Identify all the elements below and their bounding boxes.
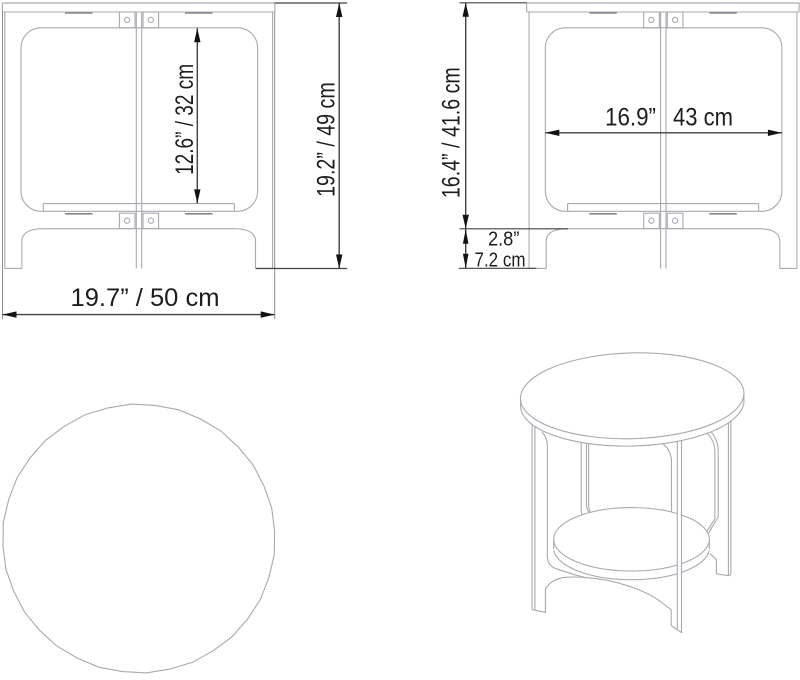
svg-text:16.4” / 41.6 cm: 16.4” / 41.6 cm	[438, 67, 466, 198]
svg-text:16.9”: 16.9”	[605, 104, 656, 132]
svg-text:19.2” / 49 cm: 19.2” / 49 cm	[313, 82, 341, 197]
svg-text:2.8”: 2.8”	[488, 229, 520, 251]
svg-text:43 cm: 43 cm	[673, 104, 733, 132]
svg-text:7.2 cm: 7.2 cm	[475, 249, 526, 271]
svg-text:19.7” / 50 cm: 19.7” / 50 cm	[71, 284, 220, 312]
svg-text:12.6” / 32 cm: 12.6” / 32 cm	[171, 64, 199, 175]
